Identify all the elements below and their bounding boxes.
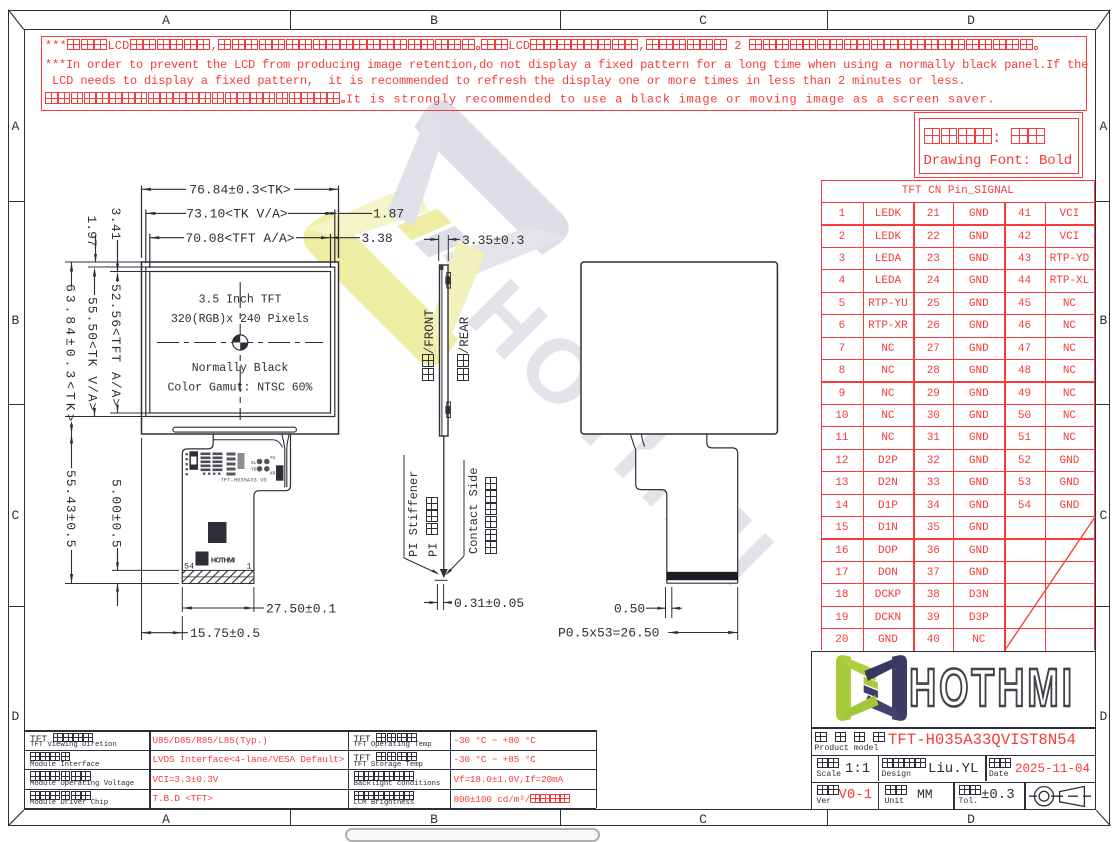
svg-text:70.08<TFT A/A>: 70.08<TFT A/A>: [185, 231, 294, 246]
svg-text:0.50: 0.50: [614, 602, 645, 617]
svg-text:76.84±0.3<TK>: 76.84±0.3<TK>: [189, 183, 291, 198]
svg-text:5.00±0.5: 5.00±0.5: [109, 479, 124, 549]
svg-text:1: 1: [247, 562, 252, 572]
svg-text:1.97: 1.97: [84, 216, 99, 247]
svg-text:63.84±0.3<TK>: 63.84±0.3<TK>: [63, 284, 78, 424]
svg-text:YD: YD: [251, 467, 257, 473]
svg-text:54: 54: [184, 562, 194, 572]
svg-text:YU: YU: [270, 455, 276, 461]
svg-text:73.10<TK V/A>: 73.10<TK V/A>: [186, 207, 288, 222]
svg-text:P0.5x53=26.50: P0.5x53=26.50: [558, 626, 659, 641]
svg-text:XR: XR: [270, 471, 276, 477]
svg-text:XL: XL: [251, 460, 257, 466]
svg-text:55.43±0.5: 55.43±0.5: [63, 470, 78, 548]
svg-text:3.5 Inch TFT: 3.5 Inch TFT: [199, 294, 282, 307]
svg-text:TFT-H035A33 V0: TFT-H035A33 V0: [221, 477, 267, 484]
svg-text:Color Gamut: NTSC 60%: Color Gamut: NTSC 60%: [168, 382, 313, 395]
svg-text:52.56<TFT A/A>: 52.56<TFT A/A>: [108, 284, 123, 407]
svg-text:27.50±0.1: 27.50±0.1: [266, 601, 336, 616]
svg-text:0.31±0.05: 0.31±0.05: [454, 596, 524, 611]
svg-text:1.87: 1.87: [373, 207, 404, 222]
svg-text:15.75±0.5: 15.75±0.5: [190, 626, 260, 641]
svg-text:55.50<TK V/A>: 55.50<TK V/A>: [85, 297, 100, 411]
svg-text:Normally Black: Normally Black: [192, 362, 289, 375]
svg-text:HOTHMI: HOTHMI: [211, 558, 235, 565]
svg-text:320(RGB)x 240 Pixels: 320(RGB)x 240 Pixels: [171, 313, 309, 326]
svg-text:3.41: 3.41: [108, 208, 123, 241]
svg-text:3.38: 3.38: [362, 231, 393, 246]
svg-text:3.35±0.3: 3.35±0.3: [462, 233, 524, 248]
